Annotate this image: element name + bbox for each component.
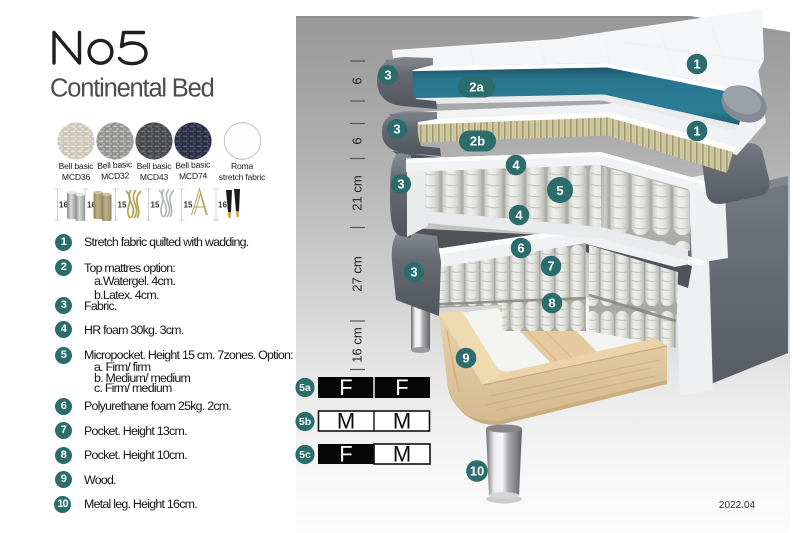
svg-text:M: M	[337, 409, 355, 434]
svg-text:Bell basic: Bell basic	[97, 159, 133, 171]
svg-text:stretch fabric: stretch fabric	[219, 172, 266, 182]
svg-text:6: 6	[349, 77, 364, 84]
svg-text:8: 8	[548, 296, 555, 311]
svg-text:Bell basic: Bell basic	[59, 161, 95, 171]
svg-text:4: 4	[512, 158, 520, 173]
svg-text:M: M	[393, 442, 411, 467]
svg-text:15: 15	[151, 201, 160, 210]
svg-text:Bell basic: Bell basic	[137, 161, 173, 171]
svg-text:1: 1	[693, 124, 700, 139]
svg-text:15: 15	[184, 201, 193, 210]
svg-text:10: 10	[470, 464, 484, 479]
svg-text:F: F	[339, 442, 352, 467]
svg-text:2022.04: 2022.04	[719, 500, 756, 511]
svg-text:6: 6	[349, 137, 364, 144]
svg-text:2a: 2a	[469, 80, 484, 95]
svg-text:3: 3	[410, 265, 417, 280]
svg-text:21 cm: 21 cm	[349, 175, 364, 210]
svg-text:MCD43: MCD43	[140, 172, 169, 182]
svg-text:3: 3	[384, 68, 391, 83]
svg-text:4: 4	[515, 208, 523, 223]
svg-text:3: 3	[393, 122, 400, 137]
svg-text:F: F	[395, 375, 408, 400]
svg-text:2b: 2b	[470, 134, 485, 149]
svg-text:5c: 5c	[299, 449, 311, 461]
svg-text:Continental Bed: Continental Bed	[50, 75, 215, 103]
svg-text:3: 3	[397, 177, 404, 192]
svg-text:MCD36: MCD36	[62, 172, 91, 182]
svg-text:M: M	[393, 409, 411, 434]
svg-text:15: 15	[118, 201, 127, 210]
svg-text:1: 1	[693, 57, 700, 72]
svg-text:MCD74: MCD74	[179, 170, 208, 181]
svg-text:16: 16	[218, 201, 227, 210]
svg-text:6: 6	[517, 241, 524, 256]
svg-text:7: 7	[547, 259, 554, 274]
svg-text:Bell basic: Bell basic	[175, 159, 211, 170]
svg-text:16 cm: 16 cm	[349, 327, 364, 362]
svg-text:F: F	[339, 375, 352, 400]
svg-text:5: 5	[556, 183, 563, 198]
svg-text:MCD32: MCD32	[101, 170, 130, 181]
svg-text:Roma: Roma	[231, 161, 254, 171]
svg-text:9: 9	[462, 351, 469, 366]
svg-text:5a: 5a	[299, 382, 311, 394]
svg-text:27 cm: 27 cm	[349, 256, 364, 291]
svg-text:5b: 5b	[299, 416, 311, 428]
